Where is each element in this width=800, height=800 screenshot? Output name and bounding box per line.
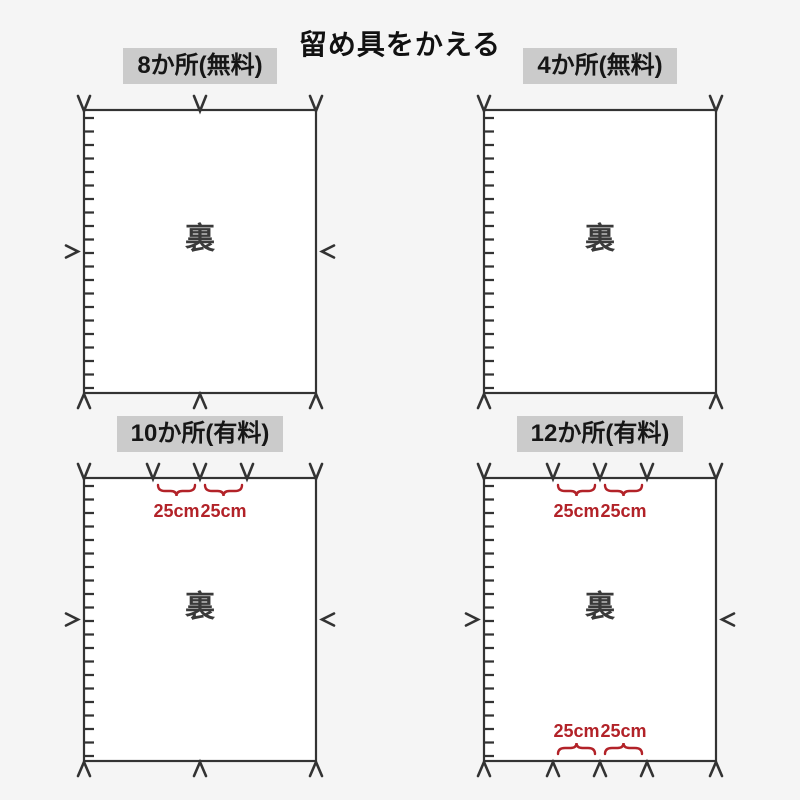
fastener-mark-bottom (478, 394, 490, 408)
stitch-ticks (84, 486, 94, 756)
fastener-mark-top (710, 96, 722, 111)
panel-10-places: 10か所(有料) 裏25cm25cm (0, 412, 400, 786)
fastener-mark-bottom (310, 394, 322, 408)
fastener-mark-bottom (641, 762, 653, 776)
fastener-mark-bottom (78, 762, 90, 776)
measure-label-top: 25cm (600, 501, 646, 521)
fastener-mark-bottom (710, 394, 722, 408)
measure-label-top: 25cm (553, 501, 599, 521)
measure-label-bottom: 25cm (600, 721, 646, 741)
fastener-mark-bottom (478, 762, 490, 776)
panel-label: 12か所(有料) (517, 416, 684, 452)
futon-back-diagram-12: 裏25cm25cm25cm25cm (400, 456, 800, 786)
fastener-mark-bottom (194, 394, 206, 408)
fastener-mark-top (194, 96, 206, 111)
fastener-mark-top (641, 464, 653, 479)
fastener-mark-bottom (547, 762, 559, 776)
fastener-mark-top (194, 464, 206, 479)
fastener-mark-right (322, 246, 334, 258)
measure-label-top: 25cm (200, 501, 246, 521)
futon-back-diagram-10: 裏25cm25cm (0, 456, 400, 786)
fastener-mark-top (78, 96, 90, 111)
stitch-ticks (484, 486, 494, 756)
fastener-mark-bottom (194, 762, 206, 776)
fastener-mark-bottom (710, 762, 722, 776)
measure-label-top: 25cm (153, 501, 199, 521)
stitch-ticks (484, 118, 494, 388)
fastener-mark-top (710, 464, 722, 479)
fastener-mark-top (310, 96, 322, 111)
measure-label-bottom: 25cm (553, 721, 599, 741)
fastener-mark-top (478, 464, 490, 479)
back-side-label: 裏 (185, 590, 216, 624)
fastener-mark-top (147, 464, 159, 479)
fastener-mark-right (322, 614, 334, 626)
fastener-mark-bottom (310, 762, 322, 776)
back-side-label: 裏 (585, 222, 616, 256)
panel-4-places: 4か所(無料) 裏 (400, 44, 800, 418)
panel-label: 4か所(無料) (523, 48, 676, 84)
fastener-mark-right (722, 614, 734, 626)
panel-8-places: 8か所(無料) 裏 (0, 44, 400, 418)
fastener-mark-left (66, 614, 78, 626)
futon-back-diagram-4: 裏 (400, 88, 800, 418)
panel-12-places: 12か所(有料) 裏25cm25cm25cm25cm (400, 412, 800, 786)
fastener-mark-bottom (594, 762, 606, 776)
fastener-mark-left (66, 246, 78, 258)
back-side-label: 裏 (185, 222, 216, 256)
fastener-mark-top (478, 96, 490, 111)
panel-label: 10か所(有料) (117, 416, 284, 452)
fastener-mark-left (466, 614, 478, 626)
fastener-mark-top (78, 464, 90, 479)
futon-back-diagram-8: 裏 (0, 88, 400, 418)
stitch-ticks (84, 118, 94, 388)
fastener-mark-top (547, 464, 559, 479)
panel-label: 8か所(無料) (123, 48, 276, 84)
fastener-mark-top (241, 464, 253, 479)
fastener-mark-top (594, 464, 606, 479)
back-side-label: 裏 (585, 590, 616, 624)
fastener-mark-top (310, 464, 322, 479)
fastener-mark-bottom (78, 394, 90, 408)
